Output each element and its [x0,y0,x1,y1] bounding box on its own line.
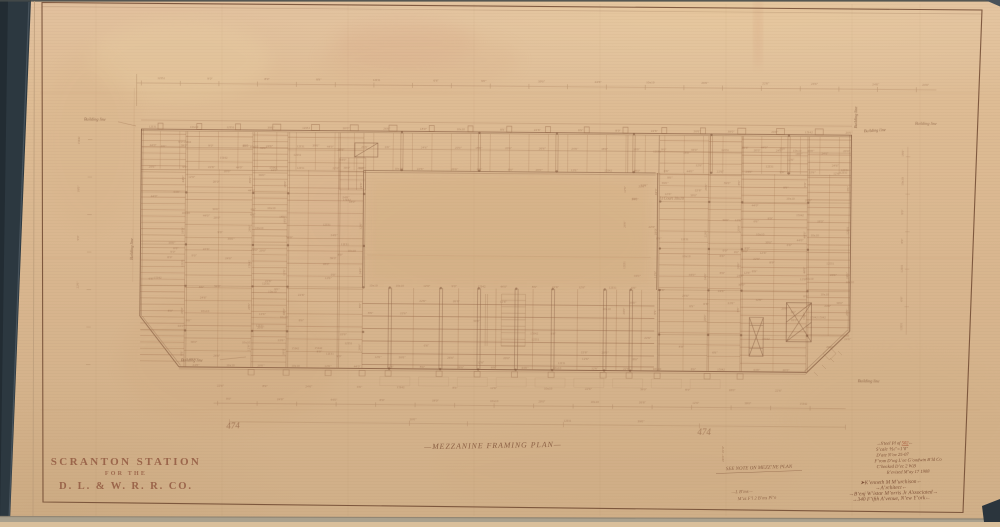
svg-text:6'6": 6'6" [712,351,718,355]
svg-text:SCRANTON STATION: SCRANTON STATION [51,456,202,468]
svg-text:15I42: 15I42 [604,168,612,172]
svg-text:12I31: 12I31 [899,322,903,330]
svg-text:12'6": 12'6" [282,268,286,276]
svg-text:44'0": 44'0" [500,284,508,288]
svg-text:20'0": 20'0" [602,350,610,354]
svg-text:24'6": 24'6" [192,363,200,367]
svg-text:9'0": 9'0" [207,77,213,81]
svg-text:44'0": 44'0" [753,368,761,372]
svg-text:20'0": 20'0" [771,130,779,134]
svg-text:12I31: 12I31 [721,148,729,152]
svg-text:26'6": 26'6" [357,166,365,170]
svg-text:12'6": 12'6" [582,357,590,361]
svg-text:12'6": 12'6" [787,158,795,162]
svg-text:D. L. & W. R. R. CO.: D. L. & W. R. R. CO. [59,481,193,492]
svg-text:18'0": 18'0" [795,152,803,156]
svg-text:8'9": 8'9" [615,128,621,132]
svg-text:474: 474 [697,427,711,437]
svg-text:44'0": 44'0" [354,364,362,368]
svg-text:22'6": 22'6" [534,128,542,132]
svg-text:39'0": 39'0" [836,301,844,305]
svg-text:20'0": 20'0" [503,356,511,360]
svg-text:15I42: 15I42 [799,402,807,406]
svg-text:8'9": 8'9" [720,271,726,275]
svg-text:39'0": 39'0" [538,79,546,83]
svg-text:Building line: Building line [915,121,937,126]
svg-text:44'0": 44'0" [691,148,699,152]
svg-text:8'9": 8'9" [736,306,740,312]
svg-text:12'6": 12'6" [692,401,700,405]
svg-text:39'0": 39'0" [212,207,220,211]
svg-text:39'0": 39'0" [260,146,268,150]
svg-text:12I31: 12I31 [826,261,834,265]
svg-text:—L B’ms—: —L B’ms— [730,489,753,495]
svg-text:26'6": 26'6" [845,308,849,316]
svg-text:6'6": 6'6" [551,331,557,335]
svg-text:10x10: 10x10 [901,177,905,186]
svg-text:44'0": 44'0" [807,149,815,153]
svg-text:39'0": 39'0" [637,419,645,423]
svg-text:15I42: 15I42 [154,276,162,280]
svg-text:26'6": 26'6" [693,129,701,133]
svg-text:24'6": 24'6" [247,302,251,310]
svg-text:12'6": 12'6" [755,298,763,302]
svg-text:22'6": 22'6" [753,257,761,261]
svg-text:12'6": 12'6" [653,270,657,278]
svg-text:6'6": 6'6" [664,169,670,173]
svg-text:9'0": 9'0" [180,350,184,356]
svg-text:39'0": 39'0" [765,240,773,244]
svg-text:22'6": 22'6" [332,166,340,170]
svg-text:8'9": 8'9" [368,311,374,315]
svg-text:10x10: 10x10 [201,309,210,313]
svg-text:24'6": 24'6" [651,129,659,133]
svg-text:9'0": 9'0" [76,234,80,240]
svg-text:6'6": 6'6" [753,219,759,223]
svg-text:20'0": 20'0" [257,325,265,329]
svg-text:26'6": 26'6" [701,81,709,85]
svg-text:10x10: 10x10 [369,283,378,287]
svg-text:20'0": 20'0" [538,399,546,403]
svg-text:24'6": 24'6" [225,256,233,260]
svg-text:8'9": 8'9" [452,386,458,390]
svg-text:44'0": 44'0" [797,238,805,242]
svg-text:26'6": 26'6" [742,146,750,150]
svg-text:18'0": 18'0" [432,399,440,403]
svg-text:18'0": 18'0" [283,180,287,188]
svg-text:24'6": 24'6" [718,289,726,293]
svg-text:22'6": 22'6" [585,387,593,391]
svg-text:24'6": 24'6" [421,145,429,149]
svg-text:12'6": 12'6" [571,168,579,172]
svg-text:9'0": 9'0" [508,168,514,172]
svg-text:6'6": 6'6" [357,385,363,389]
svg-text:12'6": 12'6" [387,364,395,368]
svg-text:10x10: 10x10 [255,226,264,230]
svg-text:39'0": 39'0" [227,237,235,241]
svg-text:FOR THE: FOR THE [105,471,147,477]
svg-text:Building line: Building line [853,106,858,128]
svg-text:12I31: 12I31 [293,153,301,157]
svg-text:26'6": 26'6" [539,146,547,150]
svg-text:20'0": 20'0" [781,306,789,310]
svg-text:22'6": 22'6" [417,167,425,171]
svg-text:22'6": 22'6" [762,81,770,85]
svg-text:12'6": 12'6" [833,172,841,176]
svg-text:44'0": 44'0" [654,188,658,196]
svg-text:10x10: 10x10 [553,366,562,370]
svg-text:22'6": 22'6" [581,350,589,354]
svg-text:12I31: 12I31 [563,419,571,423]
svg-text:10x10: 10x10 [602,307,611,311]
svg-text:44'0": 44'0" [151,194,159,198]
svg-text:22'6": 22'6" [809,170,817,174]
svg-text:9'0": 9'0" [734,250,740,254]
svg-text:20'0": 20'0" [213,180,221,184]
svg-text:12I31: 12I31 [900,264,904,272]
svg-text:12I31: 12I31 [558,361,566,365]
svg-text:24'6": 24'6" [682,294,690,298]
svg-text:12I31: 12I31 [341,242,349,246]
svg-text:10x10: 10x10 [682,254,691,258]
svg-text:24'6": 24'6" [200,296,208,300]
svg-text:44'0": 44'0" [177,324,185,328]
svg-text:22'6": 22'6" [203,247,211,251]
svg-text:39'0": 39'0" [214,284,222,288]
svg-text:44'0": 44'0" [271,168,279,172]
svg-text:8'9": 8'9" [337,253,343,257]
svg-text:20'0": 20'0" [259,249,267,253]
svg-text:26'6": 26'6" [623,220,627,228]
svg-text:10x10: 10x10 [190,125,199,129]
svg-text:6'6": 6'6" [199,285,205,289]
svg-text:6'6": 6'6" [787,243,793,247]
svg-text:24'6": 24'6" [266,144,274,148]
svg-text:20'0": 20'0" [257,363,265,367]
svg-text:20'0": 20'0" [536,168,544,172]
svg-text:20'0": 20'0" [783,368,791,372]
svg-text:12I31: 12I31 [297,144,305,148]
svg-text:6'6": 6'6" [385,145,391,149]
svg-text:26'6": 26'6" [358,343,362,351]
svg-text:24'6": 24'6" [595,80,603,84]
svg-text:6'6": 6'6" [791,310,797,314]
svg-text:8'9": 8'9" [491,365,497,369]
svg-text:8'9": 8'9" [264,77,270,81]
svg-text:20'0": 20'0" [251,248,259,252]
svg-text:Building line: Building line [84,117,106,122]
svg-text:18'0": 18'0" [817,220,825,224]
svg-text:22'6": 22'6" [400,311,408,315]
svg-text:8'9": 8'9" [900,238,904,244]
svg-text:8'9": 8'9" [380,398,386,402]
svg-text:12I31: 12I31 [846,226,850,234]
svg-text:12I31: 12I31 [302,126,310,130]
svg-text:44'0": 44'0" [689,273,697,277]
svg-text:15I42: 15I42 [183,140,191,144]
svg-text:18'0": 18'0" [282,348,286,356]
svg-text:10x10: 10x10 [242,340,251,344]
svg-text:44'0": 44'0" [282,307,286,315]
svg-text:39'0": 39'0" [258,173,266,177]
svg-text:15I42: 15I42 [717,367,725,371]
svg-text:6'6": 6'6" [250,213,256,217]
svg-text:8'9": 8'9" [689,304,695,308]
svg-text:15I42: 15I42 [314,346,322,350]
svg-text:18'0": 18'0" [791,318,799,322]
svg-text:6'6": 6'6" [243,143,249,147]
svg-text:12'6": 12'6" [359,222,363,230]
svg-text:24'6": 24'6" [845,271,849,279]
svg-text:20'0": 20'0" [224,169,232,173]
svg-text:9'0": 9'0" [186,319,192,323]
svg-text:26'6": 26'6" [457,365,465,369]
svg-text:12'6": 12'6" [500,299,508,303]
svg-text:39'0": 39'0" [168,241,176,245]
svg-text:8'9": 8'9" [768,216,774,220]
svg-text:22'6": 22'6" [76,281,80,289]
svg-text:20'0": 20'0" [343,126,351,130]
svg-text:9'0": 9'0" [191,253,197,257]
svg-text:9'0": 9'0" [667,176,673,180]
svg-text:10x10: 10x10 [820,292,829,296]
svg-text:18'0": 18'0" [601,147,609,151]
svg-text:12I31: 12I31 [226,125,234,129]
svg-text:22'6": 22'6" [340,332,348,336]
svg-text:39'0": 39'0" [312,143,320,147]
svg-text:6'6": 6'6" [900,296,904,302]
svg-text:6'6": 6'6" [703,302,709,306]
svg-text:15I42: 15I42 [802,312,806,320]
svg-text:18'0": 18'0" [181,226,185,234]
svg-text:39'0": 39'0" [722,218,730,222]
svg-text:24'6": 24'6" [631,197,639,201]
svg-text:22'6": 22'6" [775,389,783,393]
svg-text:26'6": 26'6" [830,273,838,277]
svg-text:8'9": 8'9" [737,179,741,185]
svg-text:6'6": 6'6" [424,343,430,347]
svg-text:39'0": 39'0" [690,193,698,197]
svg-text:6'6": 6'6" [433,79,439,83]
svg-text:18'0": 18'0" [633,147,641,151]
svg-text:39'0": 39'0" [190,340,198,344]
svg-text:26'6": 26'6" [383,126,391,130]
svg-text:12I31: 12I31 [262,282,270,286]
svg-text:39'0": 39'0" [724,181,732,185]
svg-text:22'6": 22'6" [717,169,725,173]
svg-text:6'6": 6'6" [846,185,850,191]
svg-text:10x10: 10x10 [646,80,655,84]
svg-text:12'6": 12'6" [374,355,382,359]
svg-text:10x10: 10x10 [181,211,190,215]
svg-text:12I31: 12I31 [531,337,539,341]
svg-text:12'6": 12'6" [490,386,498,390]
svg-text:12I31: 12I31 [609,285,617,289]
svg-text:10x10: 10x10 [490,399,499,403]
svg-text:20'0": 20'0" [845,130,853,134]
svg-text:10x10: 10x10 [250,144,259,148]
svg-text:6'6": 6'6" [631,286,637,290]
svg-text:26'6": 26'6" [658,288,666,292]
svg-text:12I31: 12I31 [326,352,334,356]
svg-text:12I31: 12I31 [622,261,626,269]
svg-text:24'6": 24'6" [359,181,363,189]
svg-text:9'0": 9'0" [723,248,729,252]
svg-text:15I42: 15I42 [291,346,299,350]
svg-text:8'9": 8'9" [420,365,426,369]
svg-text:9'0": 9'0" [803,181,807,187]
svg-text:474: 474 [226,420,240,431]
svg-text:44'0": 44'0" [236,165,244,169]
svg-text:26'6": 26'6" [736,262,740,270]
svg-text:44'0": 44'0" [327,144,335,148]
svg-text:6'6": 6'6" [161,144,167,148]
svg-text:22'6": 22'6" [208,165,216,169]
svg-text:9'0": 9'0" [170,250,176,254]
svg-text:12'6": 12'6" [623,185,627,193]
svg-text:8'9": 8'9" [262,384,268,388]
svg-text:24'6": 24'6" [622,307,626,315]
svg-text:10x10: 10x10 [653,367,662,371]
svg-text:39'0": 39'0" [473,319,481,323]
svg-text:44'0": 44'0" [521,366,529,370]
svg-text:44'0": 44'0" [181,175,185,183]
svg-text:18'0": 18'0" [631,357,639,361]
svg-text:12'6": 12'6" [735,218,743,222]
svg-text:9'0": 9'0" [208,143,214,147]
svg-text:18'0": 18'0" [279,215,287,219]
svg-text:26'6": 26'6" [639,400,647,404]
svg-text:10x10: 10x10 [226,363,235,367]
svg-text:15I42: 15I42 [762,337,770,341]
svg-text:20'0": 20'0" [409,417,417,421]
svg-text:12I31: 12I31 [681,237,689,241]
svg-text:9'0": 9'0" [477,167,483,171]
svg-text:9'0": 9'0" [745,246,751,250]
svg-text:12I31: 12I31 [373,78,381,82]
svg-text:12I31: 12I31 [766,164,774,168]
svg-text:24'6": 24'6" [703,273,707,281]
svg-text:24'6": 24'6" [922,83,930,87]
svg-text:8'9": 8'9" [299,318,305,322]
svg-text:24'6": 24'6" [844,337,852,341]
svg-text:39'0": 39'0" [744,401,752,405]
svg-text:26'6": 26'6" [451,167,459,171]
svg-text:8'9": 8'9" [656,237,662,241]
svg-text:12'6": 12'6" [744,271,752,275]
svg-text:8'9": 8'9" [752,270,758,274]
svg-text:10x10: 10x10 [793,148,802,152]
svg-text:44'0": 44'0" [173,190,181,194]
svg-text:8'9": 8'9" [679,345,685,349]
svg-text:10x10: 10x10 [805,277,814,281]
svg-text:44'0": 44'0" [803,231,807,239]
svg-text:15I42: 15I42 [810,315,818,319]
svg-text:24'6": 24'6" [811,82,819,86]
svg-text:15I42: 15I42 [818,315,826,319]
svg-text:10x10: 10x10 [268,290,277,294]
svg-text:22'6": 22'6" [623,367,631,371]
svg-text:39'0": 39'0" [248,176,252,184]
svg-text:15I42: 15I42 [397,385,405,389]
svg-text:9'0": 9'0" [178,140,184,144]
svg-text:12I31: 12I31 [157,76,165,80]
svg-text:39'0": 39'0" [286,235,294,239]
svg-text:15I42: 15I42 [220,156,228,160]
svg-text:24'6": 24'6" [331,233,339,237]
svg-text:22'6": 22'6" [641,183,649,187]
svg-text:8'9": 8'9" [653,309,657,315]
svg-text:15I42: 15I42 [478,284,486,288]
svg-text:18'0": 18'0" [420,127,428,131]
svg-text:24'6": 24'6" [305,384,313,388]
svg-text:10x10: 10x10 [456,127,465,131]
svg-text:9'0": 9'0" [780,170,786,174]
svg-text:6'6": 6'6" [149,276,155,280]
svg-text:22'6": 22'6" [298,293,306,297]
svg-text:44'0": 44'0" [330,398,338,402]
svg-text:18'0": 18'0" [475,146,483,150]
svg-text:15I42: 15I42 [77,136,81,144]
svg-text:9'0": 9'0" [661,147,667,151]
svg-text:18'0": 18'0" [901,149,905,157]
svg-text:10x10: 10x10 [544,387,553,391]
svg-text:24'6": 24'6" [832,164,840,168]
svg-text:9'0": 9'0" [226,397,232,401]
svg-text:26'6": 26'6" [361,145,369,149]
svg-text:18'0": 18'0" [323,262,331,266]
svg-text:10x10: 10x10 [348,249,357,253]
svg-text:18'0": 18'0" [729,388,737,392]
svg-text:10x10: 10x10 [590,400,599,404]
svg-text:22'6": 22'6" [217,384,225,388]
svg-text:24'6": 24'6" [571,147,579,151]
svg-text:24'6": 24'6" [821,151,829,155]
svg-text:26'6": 26'6" [213,354,221,358]
svg-text:26'6": 26'6" [337,148,345,152]
svg-text:12'6": 12'6" [591,366,599,370]
svg-text:24’6″ 18’0″: 24’6″ 18’0″ [721,445,725,462]
svg-text:Lt Court 10x10: Lt Court 10x10 [658,196,683,201]
svg-text:9'0": 9'0" [337,354,343,358]
svg-text:12'6": 12'6" [324,364,332,368]
svg-text:39'0": 39'0" [640,387,648,391]
svg-text:24'6": 24'6" [277,397,285,401]
svg-text:9'0": 9'0" [900,209,904,215]
svg-text:12'6": 12'6" [578,285,586,289]
svg-text:18'0": 18'0" [683,151,691,155]
svg-text:39'0": 39'0" [661,181,669,185]
svg-text:10x10: 10x10 [396,284,405,288]
svg-text:8'9": 8'9" [691,367,697,371]
svg-text:44'0": 44'0" [761,145,769,149]
svg-text:26'6": 26'6" [447,355,455,359]
svg-text:22'6": 22'6" [278,338,286,342]
svg-text:24'6": 24'6" [824,304,832,308]
svg-text:Building line: Building line [181,357,203,362]
svg-text:44'0": 44'0" [150,143,158,147]
svg-text:8'9": 8'9" [783,186,789,190]
svg-text:44'0": 44'0" [203,214,211,218]
svg-text:10x10: 10x10 [291,364,300,368]
svg-text:12I31: 12I31 [653,149,661,153]
svg-text:12I31: 12I31 [344,341,352,345]
svg-text:8'9": 8'9" [685,388,691,392]
svg-text:20'0": 20'0" [505,146,513,150]
svg-text:26'6": 26'6" [805,198,813,202]
svg-text:39'0": 39'0" [330,256,338,260]
svg-text:10x10: 10x10 [267,206,276,210]
